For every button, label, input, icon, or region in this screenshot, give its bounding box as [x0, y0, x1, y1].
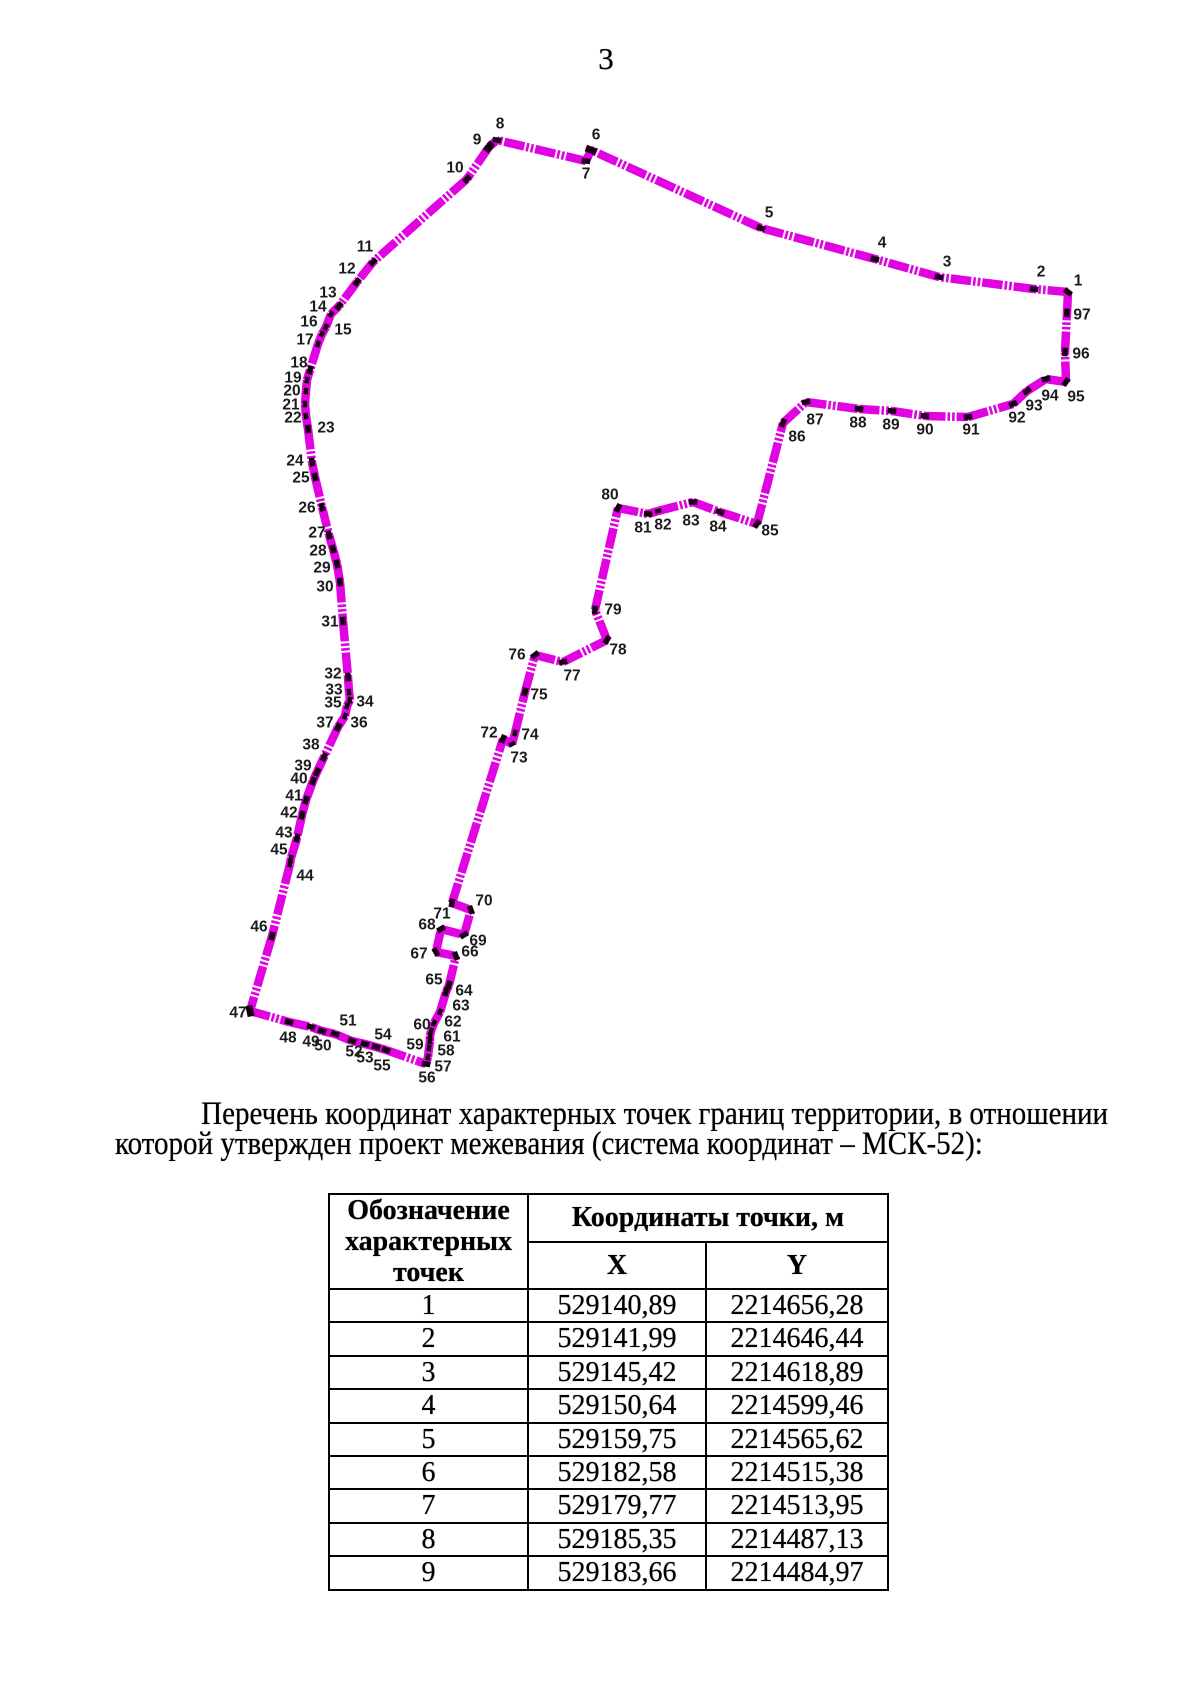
svg-text:73: 73: [510, 750, 528, 767]
svg-text:91: 91: [962, 422, 980, 439]
svg-text:11: 11: [357, 239, 374, 256]
svg-text:81: 81: [634, 520, 652, 537]
svg-text:60: 60: [413, 1017, 430, 1034]
svg-text:75: 75: [530, 687, 548, 704]
svg-text:67: 67: [410, 946, 427, 963]
svg-text:78: 78: [609, 642, 627, 659]
svg-text:40: 40: [290, 771, 307, 788]
svg-text:29: 29: [313, 560, 331, 577]
svg-text:47: 47: [229, 1005, 246, 1022]
svg-text:32: 32: [324, 666, 341, 683]
svg-text:94: 94: [1041, 388, 1059, 405]
svg-text:50: 50: [314, 1038, 331, 1055]
svg-text:42: 42: [280, 805, 297, 822]
svg-text:65: 65: [425, 972, 443, 989]
svg-text:12: 12: [338, 261, 355, 278]
svg-text:55: 55: [373, 1058, 391, 1075]
svg-text:96: 96: [1072, 346, 1090, 363]
svg-text:63: 63: [452, 998, 470, 1015]
svg-text:77: 77: [563, 668, 580, 685]
svg-text:15: 15: [334, 322, 352, 339]
svg-text:82: 82: [654, 517, 671, 534]
svg-text:6: 6: [592, 127, 601, 144]
svg-text:30: 30: [316, 579, 333, 596]
svg-text:26: 26: [298, 500, 316, 517]
svg-text:34: 34: [356, 694, 374, 711]
svg-text:87: 87: [806, 412, 823, 429]
svg-text:25: 25: [292, 470, 310, 487]
svg-text:57: 57: [434, 1059, 451, 1076]
svg-text:23: 23: [317, 420, 335, 437]
svg-text:84: 84: [709, 519, 727, 536]
svg-text:61: 61: [443, 1029, 461, 1046]
svg-text:16: 16: [300, 314, 318, 331]
svg-text:71: 71: [433, 906, 451, 923]
svg-text:44: 44: [296, 868, 314, 885]
svg-text:43: 43: [275, 825, 293, 842]
svg-text:95: 95: [1067, 389, 1085, 406]
svg-text:41: 41: [285, 788, 303, 805]
svg-text:36: 36: [350, 715, 368, 732]
svg-text:2: 2: [1037, 264, 1046, 281]
svg-text:69: 69: [469, 933, 487, 950]
svg-text:54: 54: [374, 1027, 392, 1044]
svg-text:9: 9: [473, 132, 482, 149]
svg-text:53: 53: [356, 1050, 374, 1067]
svg-text:83: 83: [682, 513, 700, 530]
svg-text:51: 51: [339, 1013, 357, 1030]
svg-text:74: 74: [521, 727, 539, 744]
svg-text:48: 48: [279, 1030, 297, 1047]
svg-text:80: 80: [601, 487, 618, 504]
svg-text:70: 70: [475, 893, 492, 910]
svg-text:35: 35: [324, 695, 342, 712]
svg-text:86: 86: [788, 429, 806, 446]
svg-text:72: 72: [480, 725, 497, 742]
svg-text:46: 46: [250, 919, 268, 936]
svg-text:7: 7: [582, 166, 591, 183]
svg-text:22: 22: [284, 410, 301, 427]
svg-text:92: 92: [1008, 410, 1025, 427]
svg-text:1: 1: [1074, 273, 1083, 290]
svg-text:24: 24: [286, 453, 304, 470]
svg-text:76: 76: [508, 647, 526, 664]
svg-text:64: 64: [455, 983, 473, 1000]
svg-text:5: 5: [765, 205, 774, 222]
svg-text:56: 56: [418, 1070, 436, 1087]
svg-text:17: 17: [296, 332, 313, 349]
svg-text:89: 89: [882, 417, 900, 434]
svg-text:8: 8: [496, 116, 505, 133]
svg-text:27: 27: [308, 525, 325, 542]
svg-text:45: 45: [270, 842, 288, 859]
svg-text:85: 85: [761, 523, 779, 540]
svg-text:88: 88: [849, 415, 867, 432]
svg-text:4: 4: [878, 235, 887, 252]
svg-text:90: 90: [916, 422, 933, 439]
svg-text:93: 93: [1025, 398, 1043, 415]
svg-text:10: 10: [446, 160, 463, 177]
svg-text:31: 31: [321, 614, 339, 631]
svg-text:97: 97: [1073, 307, 1090, 324]
svg-text:62: 62: [444, 1014, 461, 1031]
svg-text:38: 38: [302, 737, 320, 754]
svg-text:28: 28: [309, 543, 327, 560]
svg-text:59: 59: [406, 1037, 424, 1054]
svg-text:3: 3: [943, 254, 952, 271]
svg-text:79: 79: [604, 602, 622, 619]
svg-text:37: 37: [316, 715, 333, 732]
